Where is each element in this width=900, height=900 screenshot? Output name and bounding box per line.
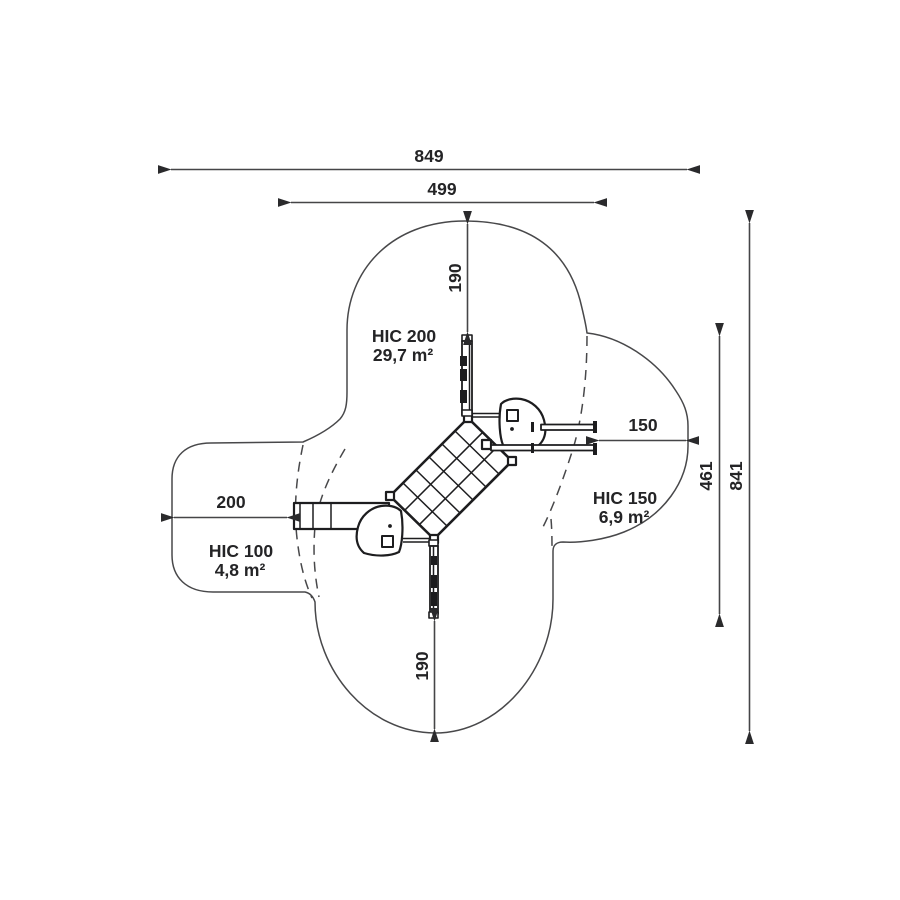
zone-hic200-name: HIC 200: [372, 326, 436, 346]
bar-upper-tick: [531, 422, 534, 432]
diagram-canvas: 849 499 841 461 190 190 200 150 HIC 200 …: [0, 0, 900, 900]
zone-hic150-name: HIC 150: [593, 488, 657, 508]
dim-inner-width-label: 499: [427, 179, 456, 199]
net-bridge: [386, 414, 516, 543]
dim-bottom-offset-label: 190: [412, 651, 432, 680]
bar-upper-end-cap: [593, 421, 597, 433]
dim-top-offset-label: 190: [445, 263, 465, 292]
climbing-wall-top: [460, 335, 501, 417]
zone-hic100-area: 4,8 m²: [215, 560, 266, 580]
platform-bottom-dot: [388, 524, 392, 528]
pole-bottom-cap: [429, 612, 438, 618]
platform-top-hatch: [507, 410, 518, 421]
play-structure: [294, 335, 597, 618]
platform-bottom-hatch: [382, 536, 393, 547]
platform-top-dot: [510, 427, 514, 431]
bar-lower-end-cap: [593, 443, 597, 455]
climber-rung-1: [460, 356, 467, 366]
post-right: [508, 457, 516, 465]
platform-top-outline: [500, 399, 546, 449]
overlap-dashed-right-bottom: [551, 519, 552, 553]
dim-right-height-label: 461: [696, 461, 716, 490]
pole-mark-2: [431, 575, 437, 588]
climber-rung-2: [460, 369, 467, 381]
climber-rung-3: [460, 390, 467, 403]
climber-bottom-cap: [462, 410, 472, 416]
dim-total-width-label: 849: [414, 146, 443, 166]
zone-hic150-area: 6,9 m²: [599, 507, 650, 527]
bar-lower-post: [482, 440, 491, 449]
horizontal-bar-lower: [491, 445, 595, 451]
zone-hic200-area: 29,7 m²: [373, 345, 433, 365]
dim-right-offset-label: 150: [628, 415, 657, 435]
bar-lower-tick: [531, 443, 534, 453]
playground-safety-zone-diagram: 849 499 841 461 190 190 200 150 HIC 200 …: [0, 0, 900, 900]
horizontal-bar-upper: [541, 425, 596, 431]
dim-total-height-label: 841: [726, 461, 746, 490]
fire-pole-bottom: [403, 539, 438, 619]
zone-hic100-name: HIC 100: [209, 541, 273, 561]
dim-left-offset-label: 200: [216, 492, 245, 512]
pole-mark-3: [431, 592, 437, 606]
pole-mark-1: [431, 556, 437, 565]
overlap-dashed-right: [543, 336, 587, 527]
platform-top-right: [500, 399, 546, 449]
post-left: [386, 492, 394, 500]
